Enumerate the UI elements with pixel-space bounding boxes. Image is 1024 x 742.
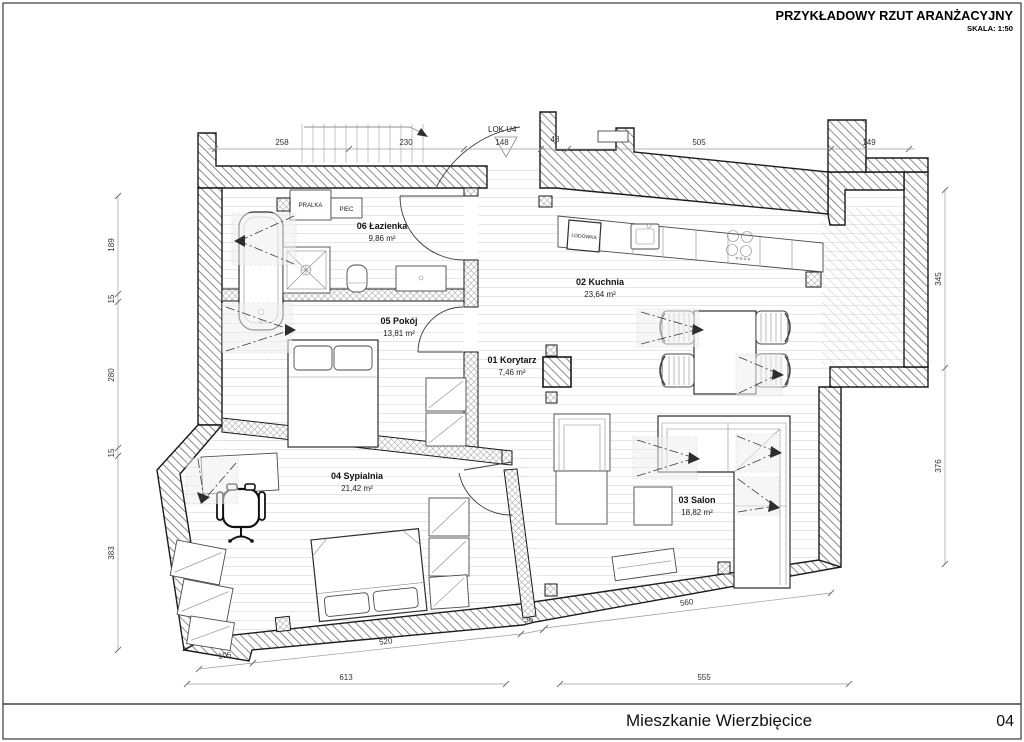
dim-label: 258 bbox=[275, 138, 289, 147]
room-area-kuchnia: 23,64 m² bbox=[584, 290, 616, 299]
dim-label: 230 bbox=[399, 138, 413, 147]
fridge: LODÓWKA bbox=[567, 220, 601, 252]
dim-label: 376 bbox=[934, 459, 943, 473]
room-label-lazienka: 06 Łazienka bbox=[357, 221, 409, 231]
column bbox=[543, 357, 571, 387]
stair-direction-arrow bbox=[417, 128, 428, 137]
room-label-korytarz: 01 Korytarz bbox=[487, 355, 537, 365]
dim-label: 345 bbox=[934, 272, 943, 286]
room-area-pokoj: 13,81 m² bbox=[383, 329, 415, 338]
dim-label: 505 bbox=[692, 138, 706, 147]
chaise-armchair bbox=[554, 414, 610, 524]
toilet bbox=[347, 265, 367, 292]
room-label-pokoj: 05 Pokój bbox=[380, 316, 417, 326]
kitchen-sloped-zone-hatch bbox=[822, 204, 904, 365]
sheet-title: PRZYKŁADOWY RZUT ARANŻACYJNY bbox=[776, 8, 1014, 23]
wardrobe-column bbox=[429, 498, 469, 609]
room-label-kuchnia: 02 Kuchnia bbox=[576, 277, 625, 287]
bathroom-shaft bbox=[277, 198, 290, 211]
washer-label: PRALKA bbox=[299, 203, 323, 209]
neighbor-wall-fragment bbox=[598, 131, 628, 142]
kitchen-sink bbox=[631, 224, 659, 249]
dim-label: 280 bbox=[107, 368, 116, 382]
dim-label: 560 bbox=[680, 597, 695, 608]
page-number: 04 bbox=[996, 713, 1014, 730]
dim-label: 613 bbox=[339, 673, 353, 682]
stove-label: PIEC bbox=[339, 207, 354, 213]
room-area-salon: 18,82 m² bbox=[681, 508, 713, 517]
water-heater: PIEC bbox=[331, 198, 362, 218]
dining-chair bbox=[660, 354, 694, 387]
sink-vanity bbox=[396, 266, 446, 291]
drawing-sheet: PRZYKŁADOWY RZUT ARANŻACYJNY SKALA: 1:50 bbox=[0, 0, 1024, 742]
coffee-table bbox=[634, 487, 672, 525]
dim-label: 15 bbox=[107, 294, 116, 303]
bed-sypialnia bbox=[311, 529, 427, 622]
bed-pokoj bbox=[288, 340, 378, 447]
room-area-sypialnia: 21,42 m² bbox=[341, 484, 373, 493]
dim-label: 555 bbox=[697, 673, 711, 682]
dining-chair bbox=[756, 311, 790, 344]
dim-label: 105 bbox=[218, 650, 233, 661]
room-label-salon: 03 Salon bbox=[678, 495, 715, 505]
dim-label: 149 bbox=[862, 138, 876, 147]
floor-plan-drawing: PRZYKŁADOWY RZUT ARANŻACYJNY SKALA: 1:50 bbox=[0, 0, 1024, 742]
dim-label: 36 bbox=[524, 615, 534, 625]
dim-label: 48 bbox=[551, 135, 560, 144]
sheet-scale: SKALA: 1:50 bbox=[967, 24, 1013, 33]
dim-label: 383 bbox=[107, 546, 116, 560]
dim-label: 520 bbox=[379, 636, 394, 646]
room-area-korytarz: 7,46 m² bbox=[498, 368, 525, 377]
room-label-sypialnia: 04 Sypialnia bbox=[331, 471, 384, 481]
dim-label: 148 bbox=[495, 138, 509, 147]
project-title: Mieszkanie Wierzbięcice bbox=[626, 711, 812, 730]
dim-label: 189 bbox=[107, 238, 116, 252]
dimensions-right: 345 376 bbox=[934, 187, 948, 567]
unit-label: LOK U4 bbox=[488, 125, 517, 134]
room-area-lazienka: 9,86 m² bbox=[368, 234, 395, 243]
dim-label: 15 bbox=[107, 448, 116, 457]
dimensions-left: 189 15 280 15 383 bbox=[107, 193, 121, 653]
